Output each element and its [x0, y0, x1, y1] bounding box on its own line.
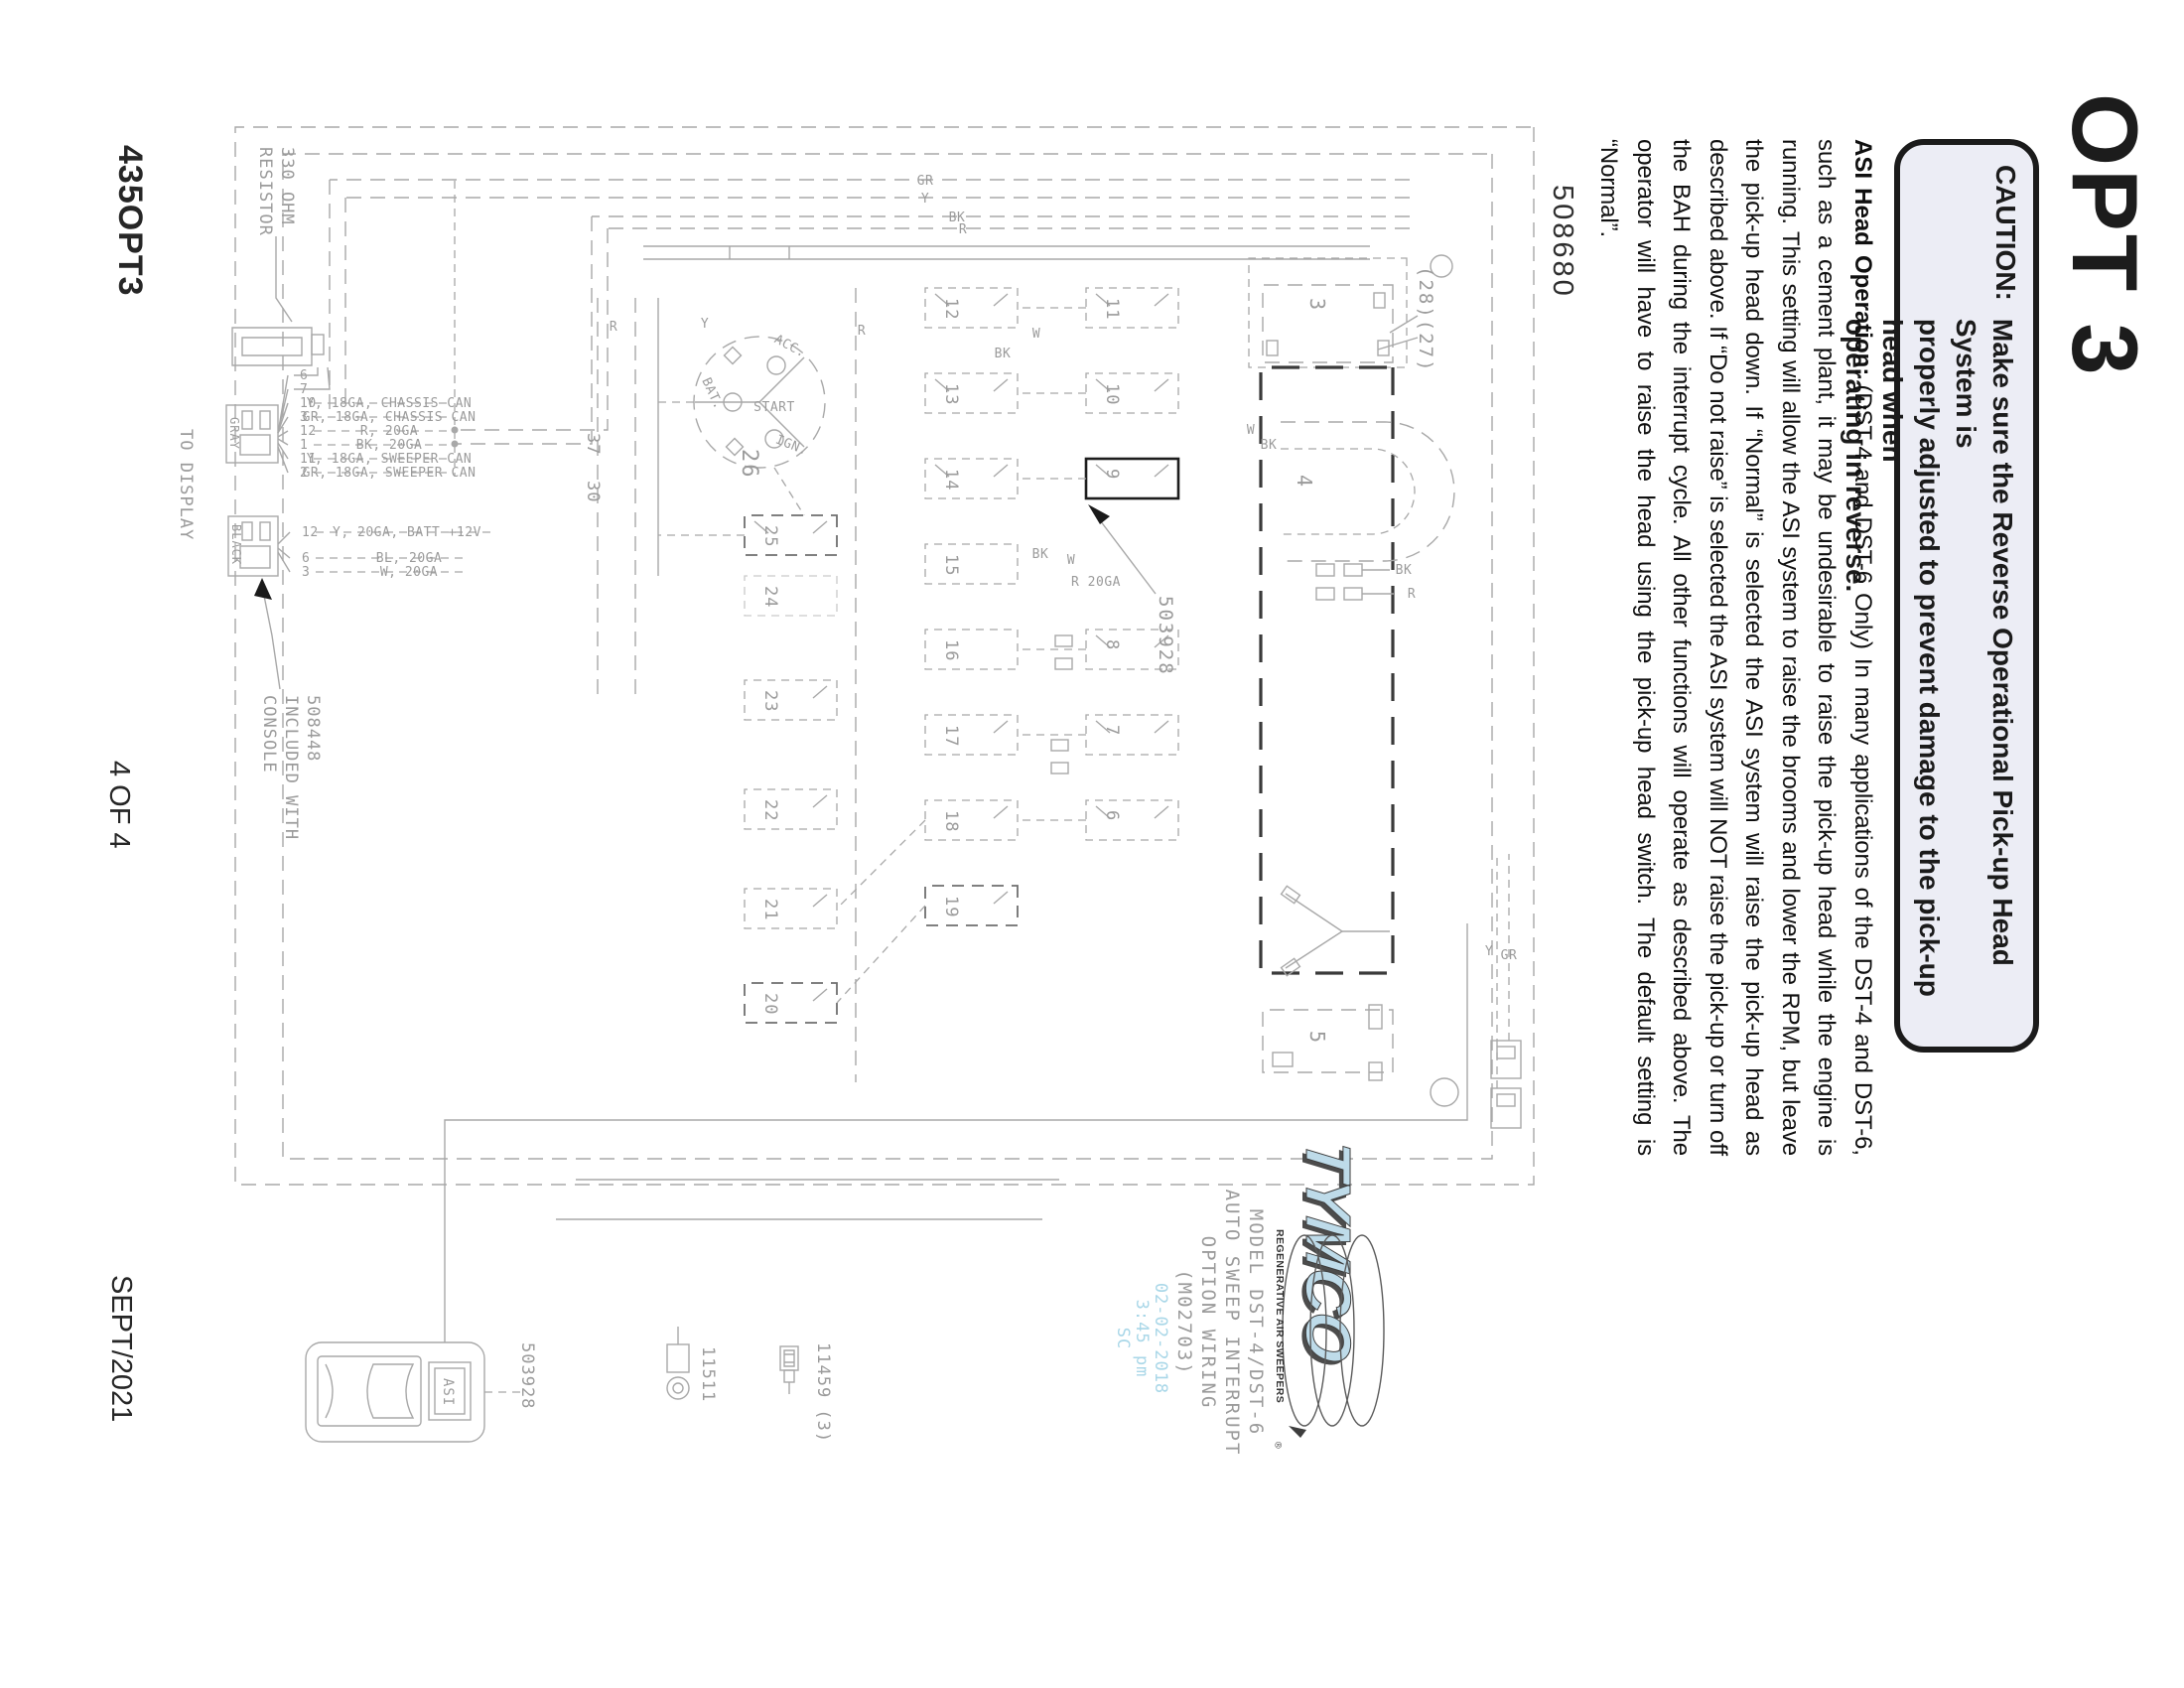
- relay-label: 18: [941, 810, 961, 832]
- gray-connector-label: GRAY: [227, 417, 241, 450]
- wire-label: Y, 20GA, BATT +12V: [333, 525, 481, 540]
- relay-label: 19: [941, 896, 961, 917]
- document-page: OPT 3 CAUTION: Make sure the Reverse Ope…: [0, 0, 2184, 1688]
- arrow-icon: [1088, 504, 1110, 524]
- model-line4: (M02703): [1173, 1269, 1195, 1376]
- model-line3: OPTION WIRING: [1197, 1236, 1219, 1410]
- component-4-enclosure: 4: [1261, 367, 1454, 976]
- wire-label-r: R: [1408, 587, 1416, 602]
- wire-label: GR, 18GA, CHASSIS CAN: [303, 410, 477, 425]
- relay-row-b: 12 13 14 15 16 17 18 19: [925, 288, 1018, 925]
- ring-terminal-11511: 11511: [667, 1327, 718, 1402]
- wire-label-gr: GR: [917, 174, 934, 189]
- wire-label-r: R: [959, 222, 967, 237]
- wire-label-r: R: [610, 320, 617, 335]
- wire-label: R, 20GA: [360, 424, 418, 439]
- relay-label: 11: [1102, 298, 1122, 320]
- relay-label: 23: [760, 690, 780, 712]
- component-4-label: 4: [1293, 475, 1316, 488]
- stamp-initials: SC: [1113, 1328, 1133, 1349]
- harness-loom-bar: [643, 246, 1370, 259]
- black-connector: BLACK 12 6 3 Y, 20GA, BATT +12V BL, 20GA…: [228, 516, 496, 580]
- relay-label: 21: [760, 899, 780, 920]
- wire-label-bk: BK: [1032, 547, 1049, 562]
- wire-label-y: Y: [1485, 944, 1493, 959]
- console-note: 508448 INCLUDED WITH CONSOLE: [254, 578, 323, 840]
- wire-label: W, 20GA: [380, 565, 438, 580]
- part-number: 11459 (3): [813, 1342, 833, 1443]
- terminal-37-label: 37: [583, 433, 603, 455]
- wire-label: BK, 20GA: [356, 438, 423, 453]
- stamp-time: 3:45 pm: [1132, 1300, 1152, 1378]
- black-connector-label: BLACK: [229, 524, 243, 565]
- relay-interconnects: W BK BK W R 20GA R 37 30 Y R: [583, 288, 1121, 1082]
- resistor-330ohm: 330 OHM RESISTOR: [232, 147, 324, 365]
- component-5-label: 5: [1305, 1031, 1329, 1044]
- screenshot-root: { "page": { "opt_title": "OPT 3", "drawi…: [0, 0, 2184, 1688]
- stamp-date: 02-02-2018: [1151, 1283, 1170, 1394]
- component-5: 5: [1263, 1005, 1458, 1106]
- mounting-hole-icon: [1431, 1078, 1458, 1106]
- relay-label: 7: [1102, 725, 1122, 736]
- arrow-icon: [254, 578, 272, 600]
- wire-label-bk: BK: [995, 347, 1012, 361]
- wire-label-r20ga: R 20GA: [1071, 575, 1121, 590]
- relay-label: 15: [941, 554, 961, 576]
- wire-label-y: Y: [701, 317, 709, 332]
- model-line1: MODEL DST-4/DST-6: [1245, 1209, 1267, 1436]
- wire-label: GR, 18GA, SWEEPER CAN: [303, 466, 477, 481]
- wire-label: Y, 18GA, CHASSIS CAN: [307, 396, 473, 411]
- component-3-label: 3: [1305, 298, 1329, 311]
- pin-number: 3: [302, 565, 310, 580]
- wire-label-gr: GR: [1501, 948, 1518, 963]
- console-note-line2: INCLUDED WITH: [281, 695, 301, 840]
- console-note-line3: CONSOLE: [259, 695, 279, 774]
- harness-outline-outer: [235, 127, 1534, 1185]
- model-block: MODEL DST-4/DST-6 AUTO SWEEP INTERRUPT O…: [1173, 1190, 1267, 1457]
- relay-label: 6: [1102, 810, 1122, 821]
- wire-label-y: Y: [921, 192, 929, 207]
- resistor-label-line1: 330 OHM: [277, 147, 297, 225]
- key-ign-label: IGN.: [773, 433, 810, 459]
- relay-label: 10: [1102, 383, 1122, 405]
- interconnect-terminals: BK R W BK: [1247, 423, 1416, 602]
- to-display-label: TO DISPLAY: [176, 429, 196, 540]
- key-start-label: START: [753, 400, 795, 415]
- wire-label-w: W: [1032, 327, 1040, 342]
- gray-connector: GRAY 6 7 10 3 12 1 11 2 Y, 18GA, CHASSIS…: [226, 367, 476, 481]
- asi-switch-label: ASI: [440, 1378, 456, 1406]
- asi-rocker-switch: ASI: [306, 1342, 524, 1442]
- relay-label: 9: [1102, 469, 1122, 480]
- relay-label: 8: [1102, 639, 1122, 650]
- logo-tagline: REGENERATIVE AIR SWEEPERS: [1274, 1229, 1286, 1403]
- relay-row-c: 25 24 23 22 21 20: [745, 515, 837, 1023]
- gr-y-connectors: Y GR: [1485, 854, 1521, 1128]
- console-note-line1: 508448: [303, 695, 323, 762]
- pin-number: 1: [300, 438, 308, 453]
- wire-label: BL, 20GA: [376, 551, 443, 566]
- wire-label-r: R: [858, 324, 866, 339]
- pin-number: 6: [302, 551, 310, 566]
- spade-terminal-11459: 11459 (3): [780, 1342, 833, 1443]
- relay-label: 22: [760, 799, 780, 821]
- relay-label: 13: [941, 383, 961, 405]
- model-line2: AUTO SWEEP INTERRUPT: [1221, 1190, 1243, 1457]
- wire-label-bk: BK: [1396, 563, 1413, 578]
- relay-label: 24: [760, 586, 780, 608]
- wire-label-bk: BK: [1261, 438, 1278, 453]
- wire-label-w: W: [1067, 553, 1075, 568]
- logo-word: TYMCO: [1293, 1137, 1364, 1365]
- component-2827-label: (28)(27): [1415, 266, 1436, 373]
- key-switch: ACC. BAT. IGN. START 26: [658, 332, 825, 515]
- key-switch-number: 26: [737, 449, 761, 480]
- part-number: 503928: [1155, 596, 1176, 676]
- relay-label: 14: [941, 469, 961, 491]
- tymco-logo: TYMCO TYMCO REGENERATIVE AIR SWEEPERS ®: [1272, 1137, 1384, 1449]
- relay-label: 17: [941, 725, 961, 747]
- wire-label-w: W: [1247, 423, 1255, 438]
- relay-label: 25: [760, 525, 780, 547]
- resistor-label-line2: RESISTOR: [255, 147, 275, 236]
- relay-label: 16: [941, 639, 961, 661]
- date-stamp: 02-02-2018 3:45 pm SC: [1113, 1283, 1170, 1394]
- swirl-arrow-icon: [1289, 1426, 1306, 1438]
- terminal-30-label: 30: [583, 481, 603, 502]
- relay-label: 12: [941, 298, 961, 320]
- wire-label: Y, 18GA, SWEEPER CAN: [307, 452, 473, 467]
- component-3: 3 (28)(27): [1249, 255, 1452, 373]
- relay-label: 20: [760, 993, 780, 1015]
- key-bat-label: BAT.: [698, 375, 726, 412]
- wiring-schematic: GR Y BK R 3 (28)(27): [0, 0, 2184, 1688]
- registered-mark: ®: [1272, 1442, 1285, 1449]
- switch-part-number: 503928: [517, 1342, 537, 1409]
- part-number: 11511: [698, 1346, 718, 1402]
